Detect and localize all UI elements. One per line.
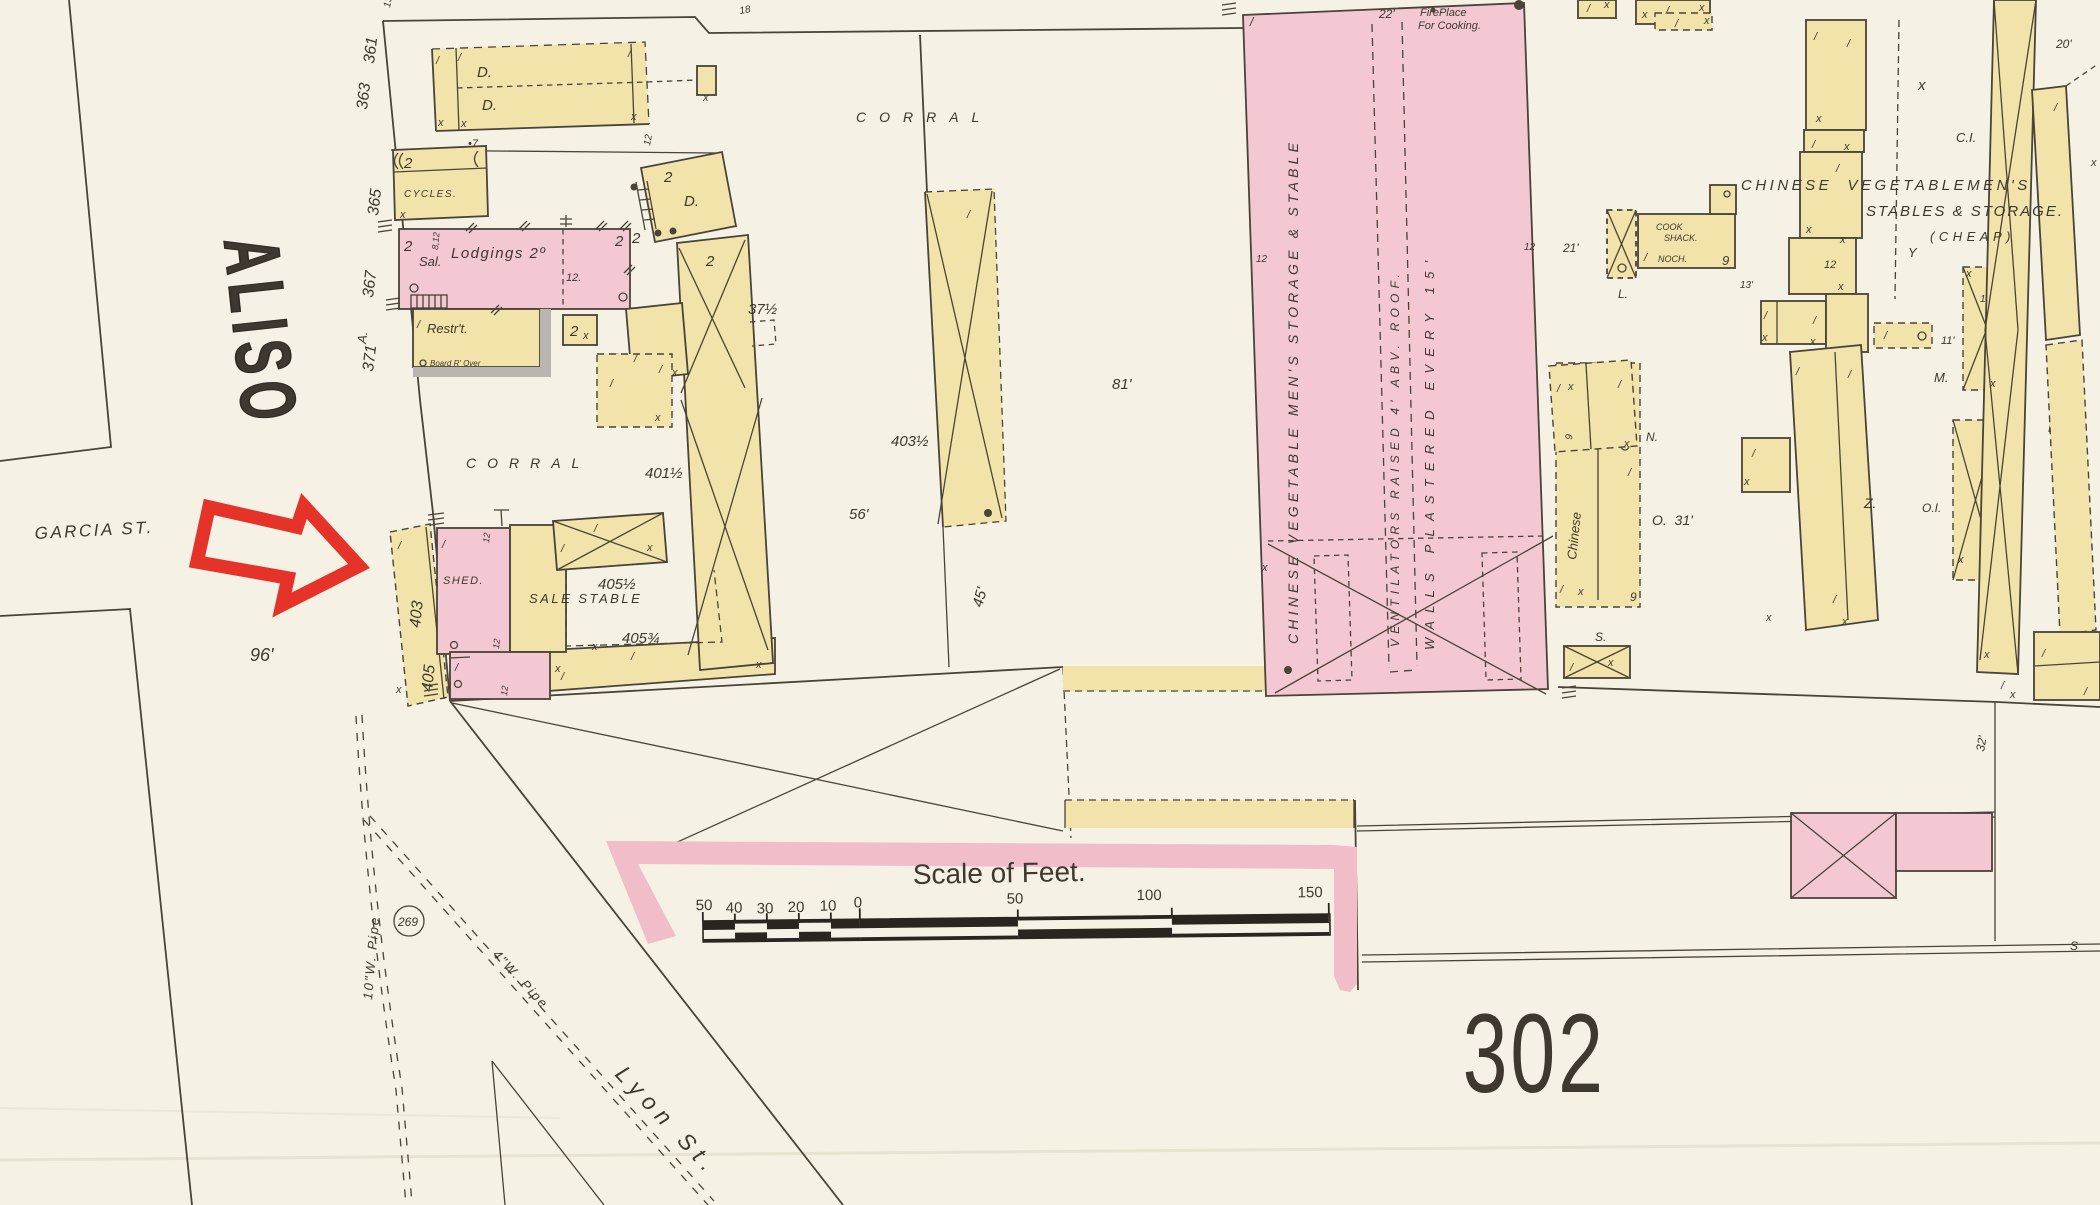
svg-text:403: 403	[407, 600, 427, 628]
svg-text:SHED.: SHED.	[443, 575, 484, 587]
svg-text:405½: 405½	[598, 576, 636, 593]
svg-text:2: 2	[614, 233, 624, 250]
svg-text:x: x	[1567, 381, 1574, 393]
svg-text:30: 30	[757, 900, 774, 917]
svg-text:x: x	[1761, 332, 1768, 344]
svg-text:Lodgings 2º: Lodgings 2º	[451, 245, 546, 262]
svg-text:Restr't.: Restr't.	[427, 321, 468, 336]
svg-text:STABLES & STORAGE.: STABLES & STORAGE.	[1866, 203, 2064, 220]
svg-text:2: 2	[663, 169, 673, 186]
svg-text:405¾: 405¾	[622, 630, 660, 647]
svg-text:371: 371	[360, 344, 380, 373]
svg-text:x: x	[1815, 113, 1822, 125]
svg-text:x: x	[554, 663, 561, 675]
svg-text:x: x	[1805, 224, 1812, 236]
svg-text:x: x	[1983, 649, 1990, 661]
svg-text:x: x	[460, 118, 467, 130]
svg-text:x: x	[1765, 612, 1772, 624]
svg-text:20': 20'	[2055, 37, 2072, 51]
svg-text:0: 0	[854, 894, 863, 911]
svg-text:x: x	[1989, 378, 1996, 390]
svg-text:56': 56'	[849, 506, 870, 523]
svg-text:SHACK.: SHACK.	[1664, 233, 1698, 243]
svg-text:100: 100	[1137, 887, 1162, 904]
svg-text:x: x	[1603, 0, 1610, 11]
svg-text:x: x	[399, 209, 406, 221]
svg-text:2: 2	[403, 238, 413, 255]
svg-text:50: 50	[1007, 890, 1024, 907]
svg-text:S.: S.	[1595, 630, 1606, 644]
svg-text:21': 21'	[1562, 241, 1579, 255]
svg-text:12: 12	[481, 532, 492, 543]
svg-text:8,12: 8,12	[430, 232, 441, 250]
svg-text:x: x	[1577, 586, 1584, 598]
svg-text:13: 13	[382, 0, 395, 9]
svg-text:x: x	[1743, 476, 1750, 488]
svg-text:x: x	[1261, 562, 1268, 574]
svg-text:x: x	[671, 367, 678, 379]
svg-text:L.: L.	[1618, 287, 1628, 301]
svg-text:32': 32'	[1973, 734, 1990, 753]
svg-text:x: x	[654, 412, 661, 424]
svg-text:361: 361	[361, 36, 381, 65]
svg-text:VENTILATORS RAISED 4' ABV. ROO: VENTILATORS RAISED 4' ABV. ROOF.	[1388, 269, 1402, 647]
svg-text:363: 363	[354, 82, 374, 111]
svg-text:N.: N.	[1646, 430, 1658, 444]
svg-text:O.I.: O.I.	[1922, 501, 1941, 515]
svg-text:269: 269	[397, 915, 418, 929]
svg-text:Scale of Feet.: Scale of Feet.	[913, 856, 1086, 890]
svg-text:x: x	[1965, 268, 1972, 280]
svg-text:12: 12	[1824, 259, 1836, 271]
svg-text:x: x	[1839, 234, 1846, 246]
svg-text:x: x	[1703, 15, 1710, 27]
svg-text:D.: D.	[477, 64, 492, 81]
svg-text:x: x	[395, 684, 402, 696]
svg-text:CHINESE VEGETABLEMEN'S: CHINESE VEGETABLEMEN'S	[1741, 177, 2031, 194]
svg-text:302: 302	[1463, 991, 1606, 1116]
svg-text:9: 9	[1722, 253, 1729, 268]
svg-text:Z.: Z.	[1863, 495, 1876, 511]
svg-text:81': 81'	[1112, 376, 1133, 393]
svg-text:22': 22'	[1378, 7, 1395, 21]
svg-text:A.: A.	[354, 330, 371, 345]
svg-text:x: x	[755, 659, 762, 671]
svg-text:12: 12	[491, 638, 502, 649]
svg-text:COOK: COOK	[1656, 222, 1684, 232]
svg-text:x: x	[630, 111, 637, 123]
svg-text:x: x	[1917, 77, 1926, 94]
svg-text:x: x	[1837, 281, 1844, 293]
svg-text:CYCLES.: CYCLES.	[404, 189, 457, 200]
svg-text:(CHEAP): (CHEAP)	[1930, 229, 2015, 244]
svg-text:11': 11'	[1941, 335, 1955, 347]
svg-text:405: 405	[419, 664, 439, 692]
svg-text:x: x	[591, 641, 598, 653]
svg-text:FirePlace: FirePlace	[1420, 7, 1466, 19]
svg-text:Board R′ Over: Board R′ Over	[430, 359, 481, 368]
svg-text:x: x	[1841, 616, 1848, 628]
svg-text:2: 2	[705, 253, 715, 270]
svg-text:401½: 401½	[645, 465, 683, 482]
svg-text:•7: •7	[468, 138, 479, 150]
svg-text:367: 367	[360, 269, 380, 299]
svg-text:20: 20	[788, 899, 805, 916]
svg-text:x: x	[1957, 554, 1964, 566]
svg-text:12: 12	[1256, 254, 1268, 265]
svg-text:12.: 12.	[566, 272, 581, 284]
svg-text:96': 96'	[250, 645, 274, 665]
svg-text:x: x	[437, 117, 444, 129]
svg-text:2: 2	[403, 155, 413, 172]
svg-text:37½: 37½	[748, 301, 778, 318]
svg-text:SALE STABLE: SALE STABLE	[529, 591, 642, 606]
svg-text:365: 365	[365, 188, 385, 217]
svg-text:x: x	[1623, 438, 1630, 450]
svg-text:D.: D.	[684, 193, 699, 210]
svg-text:S: S	[2070, 939, 2078, 953]
svg-text:9: 9	[1630, 590, 1637, 604]
svg-text:12: 12	[1524, 242, 1536, 253]
svg-text:403½: 403½	[891, 433, 929, 450]
svg-text:O. 31': O. 31'	[1652, 512, 1694, 528]
svg-text:CHINESE VEGETABLE MEN'S STORAG: CHINESE VEGETABLE MEN'S STORAGE & STABLE	[1285, 139, 1301, 644]
svg-text:x: x	[1607, 657, 1614, 669]
svg-text:M.: M.	[1934, 370, 1948, 385]
svg-text:x: x	[1641, 9, 1648, 21]
svg-text:10: 10	[820, 898, 837, 915]
svg-text:x: x	[1843, 141, 1850, 153]
svg-text:x: x	[1698, 2, 1705, 14]
svg-text:12: 12	[499, 685, 510, 696]
svg-text:x: x	[1809, 336, 1816, 348]
svg-text:x: x	[2009, 689, 2016, 701]
svg-text:13': 13'	[1740, 280, 1754, 291]
svg-text:x: x	[702, 92, 709, 104]
svg-text:2: 2	[631, 230, 641, 247]
svg-text:For Cooking.: For Cooking.	[1418, 20, 1481, 32]
svg-text:Sal.: Sal.	[419, 254, 441, 269]
svg-text:x: x	[2090, 157, 2097, 169]
svg-text:NOCH.: NOCH.	[1658, 254, 1687, 264]
svg-text:Y: Y	[1908, 245, 1918, 260]
svg-text:150: 150	[1298, 884, 1323, 901]
svg-text:50: 50	[696, 897, 713, 914]
svg-text:2: 2	[569, 323, 579, 340]
svg-text:C.I.: C.I.	[1956, 130, 1976, 145]
svg-text:WALLS PLASTERED EVERY 15': WALLS PLASTERED EVERY 15'	[1422, 253, 1437, 650]
svg-text:x: x	[582, 330, 589, 342]
svg-text:D.: D.	[482, 97, 497, 114]
svg-text:x: x	[646, 542, 653, 554]
svg-text:CORRAL: CORRAL	[856, 109, 992, 125]
svg-text:CORRAL: CORRAL	[466, 455, 590, 471]
